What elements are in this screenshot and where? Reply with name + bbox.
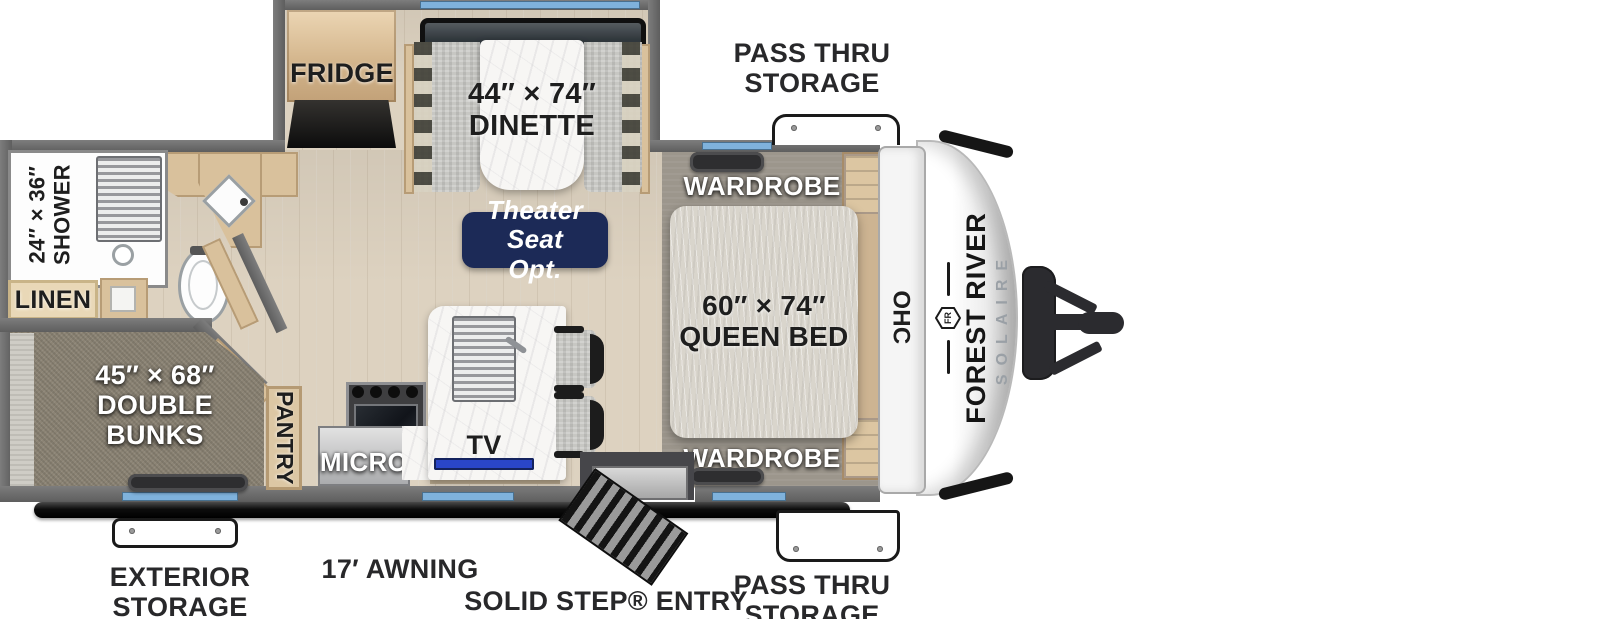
slideout-window-strip [420,1,640,9]
pass-thru-door-bottom [776,510,900,562]
hitch-frame-bottom [1048,341,1103,376]
bunk-bolster [10,333,34,486]
burner-icon [370,386,382,398]
sink-cover [452,316,516,402]
hitch-coupler [1078,312,1124,334]
pantry-label: PANTRY [271,383,297,493]
bath-faucet [240,198,248,206]
brand-logo-row: FR [935,188,961,448]
chair-back [590,400,604,450]
burner-icon [352,386,364,398]
pass-thru-door-top [772,114,900,145]
exterior-storage-door [112,518,238,548]
bedroom-window-top [702,142,772,150]
chair-back [590,334,604,384]
screw-icon [215,528,221,534]
shower-door-glass [96,156,162,242]
wardrobe-bottom-hatch [690,468,764,485]
queen-bed-label: 60″ × 74″ QUEEN BED [672,290,856,353]
vanity-sink [110,286,136,312]
bunk-window-bottom [122,492,238,501]
brand-make: FOREST RIVER [961,188,992,448]
burner-icon [406,386,418,398]
dinette-bench-left-stripe [414,42,432,192]
fridge-label: FRIDGE [287,58,397,88]
dinette-bench-trim-left [404,44,414,194]
exterior-storage-label: EXTERIOR STORAGE [80,562,280,619]
theater-seat-label: Theater Seat Opt. [462,196,608,283]
dinette-bench-right-stripe [622,42,640,192]
screw-icon [875,125,881,131]
svg-text:FR: FR [943,312,953,324]
pass-thru-storage-top-label: PASS THRU STORAGE [712,38,912,98]
chair-arm [554,326,584,333]
wardrobe-top-label: WARDROBE [672,172,852,201]
screw-icon [129,528,135,534]
forest-river-logo-icon: FR [935,306,961,330]
stool-chair [556,396,596,454]
brand-dash [947,340,950,374]
awning-label: 17′ AWNING [310,554,490,584]
awning-tube [34,502,850,518]
shower-drain [112,244,134,266]
slideout-left-wall [273,0,285,152]
bath-wall [0,318,212,332]
floorplan-canvas: FRIDGE 44″ × 74″ DINETTE Theater Seat Op… [0,0,1600,619]
screw-icon [793,546,799,552]
solid-step-entry-label: SOLID STEP® ENTRY [456,586,756,616]
shower-label: 24″ × 36″ SHOWER [25,153,74,277]
micro-label: MICRO [318,448,410,477]
cap-branding: FR FOREST RIVER SOLAIRE [935,188,1009,448]
kitchen-window-bottom [422,492,514,501]
tv-label: TV [448,430,520,460]
screw-icon [791,125,797,131]
bedroom-window-bottom [712,492,786,501]
stool-chair [556,330,596,388]
burner-icon [388,386,400,398]
fridge-open-door [287,100,396,148]
linen-label: LINEN [8,286,98,314]
brand-model: SOLAIRE [994,188,1012,448]
tv-screen [434,458,534,470]
screw-icon [877,546,883,552]
chair-arm [554,385,584,392]
dinette-label: 44″ × 74″ DINETTE [452,78,612,143]
ohc-label: OHC [887,265,914,369]
bunk-storage-hatch [128,474,248,491]
theater-seat-badge: Theater Seat Opt. [462,212,608,268]
bunks-label: 45″ × 68″ DOUBLE BUNKS [55,360,255,451]
wardrobe-top-hatch [690,152,764,172]
brand-dash [947,262,950,296]
chair-arm [554,392,584,399]
